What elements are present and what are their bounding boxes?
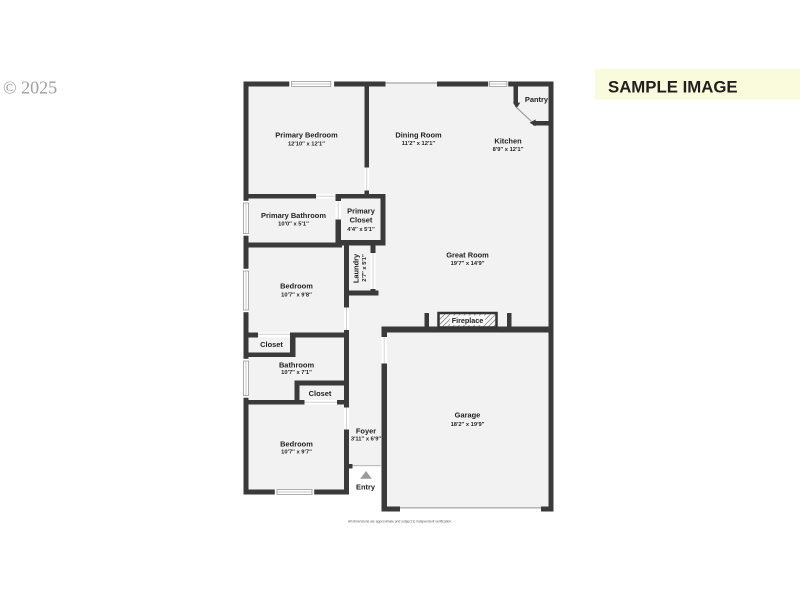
- svg-text:Primary Bedroom: Primary Bedroom: [275, 131, 338, 140]
- svg-text:18′2″ x 19′9″: 18′2″ x 19′9″: [451, 422, 485, 428]
- svg-text:© 2025: © 2025: [3, 77, 57, 97]
- svg-text:Closet: Closet: [350, 216, 373, 225]
- svg-text:Kitchen: Kitchen: [494, 136, 522, 145]
- svg-text:All dimensions are approximate: All dimensions are approximate and subje…: [348, 520, 452, 524]
- svg-text:3′11″ x 6′9″: 3′11″ x 6′9″: [351, 437, 382, 443]
- svg-text:Bathroom: Bathroom: [279, 361, 315, 370]
- svg-text:Foyer: Foyer: [356, 427, 376, 436]
- svg-text:11′2″ x 12′1″: 11′2″ x 12′1″: [402, 141, 436, 147]
- svg-text:Bedroom: Bedroom: [280, 282, 313, 291]
- svg-text:8′9″ x 12′1″: 8′9″ x 12′1″: [493, 147, 524, 153]
- svg-text:10′0″ x 5′1″: 10′0″ x 5′1″: [278, 222, 309, 228]
- svg-text:Closet: Closet: [260, 340, 283, 349]
- svg-text:Closet: Closet: [309, 389, 332, 398]
- svg-text:Entry: Entry: [356, 483, 376, 492]
- svg-text:Fireplace: Fireplace: [452, 316, 484, 325]
- svg-text:4′4″ x 5′1″: 4′4″ x 5′1″: [347, 227, 375, 233]
- svg-text:Dining Room: Dining Room: [395, 131, 442, 140]
- svg-text:Bedroom: Bedroom: [280, 440, 313, 449]
- svg-text:Pantry: Pantry: [525, 95, 549, 104]
- svg-text:10′7″ x 9′7″: 10′7″ x 9′7″: [281, 450, 312, 456]
- svg-text:19′7″ x 14′9″: 19′7″ x 14′9″: [451, 261, 485, 267]
- svg-text:Great Room: Great Room: [446, 251, 489, 260]
- svg-text:12′10″ x 12′1″: 12′10″ x 12′1″: [288, 141, 325, 147]
- svg-text:10′7″ x 9′8″: 10′7″ x 9′8″: [281, 292, 312, 298]
- svg-text:Laundry: Laundry: [352, 253, 361, 283]
- svg-text:SAMPLE IMAGE: SAMPLE IMAGE: [608, 78, 738, 97]
- svg-text:10′7″ x 7′1″: 10′7″ x 7′1″: [281, 370, 312, 376]
- svg-text:Garage: Garage: [455, 411, 481, 420]
- svg-text:2′7″ x 5′1″: 2′7″ x 5′1″: [362, 254, 368, 282]
- svg-text:Primary: Primary: [347, 207, 376, 216]
- svg-text:Primary Bathroom: Primary Bathroom: [261, 211, 326, 220]
